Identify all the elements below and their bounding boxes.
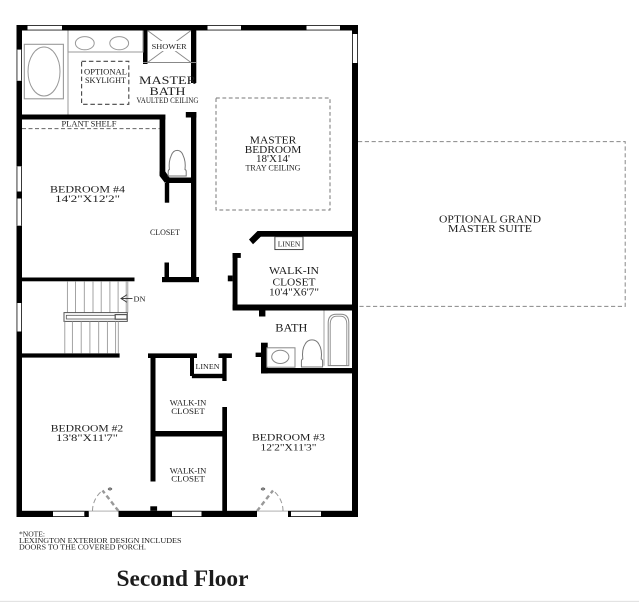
svg-text:SKYLIGHT: SKYLIGHT (85, 75, 127, 85)
svg-text:BATH: BATH (275, 323, 307, 335)
svg-text:13'8"X11'7": 13'8"X11'7" (56, 433, 118, 444)
svg-text:WALK-IN: WALK-IN (269, 266, 320, 277)
svg-text:10'4"X6'7": 10'4"X6'7" (269, 288, 319, 299)
svg-text:SHOWER: SHOWER (152, 42, 188, 51)
svg-text:VAULTED CEILING: VAULTED CEILING (137, 95, 199, 105)
svg-text:*: * (107, 485, 113, 497)
svg-text:LINEN: LINEN (278, 240, 301, 249)
svg-text:*: * (260, 485, 266, 497)
svg-text:LINEN: LINEN (196, 362, 221, 371)
svg-text:MASTER SUITE: MASTER SUITE (448, 224, 532, 235)
svg-text:12'2"X11'3": 12'2"X11'3" (261, 442, 317, 453)
svg-text:TRAY CEILING: TRAY CEILING (246, 164, 301, 173)
svg-text:DN: DN (134, 295, 146, 304)
svg-text:DOORS TO THE COVERED PORCH.: DOORS TO THE COVERED PORCH. (19, 543, 146, 552)
svg-text:CLOSET: CLOSET (171, 407, 205, 416)
svg-text:14'2"X12'2": 14'2"X12'2" (55, 194, 120, 205)
svg-text:Second Floor: Second Floor (117, 566, 249, 592)
svg-text:CLOSET: CLOSET (150, 228, 180, 237)
svg-text:CLOSET: CLOSET (171, 475, 205, 484)
svg-text:PLANT SHELF: PLANT SHELF (62, 118, 117, 128)
